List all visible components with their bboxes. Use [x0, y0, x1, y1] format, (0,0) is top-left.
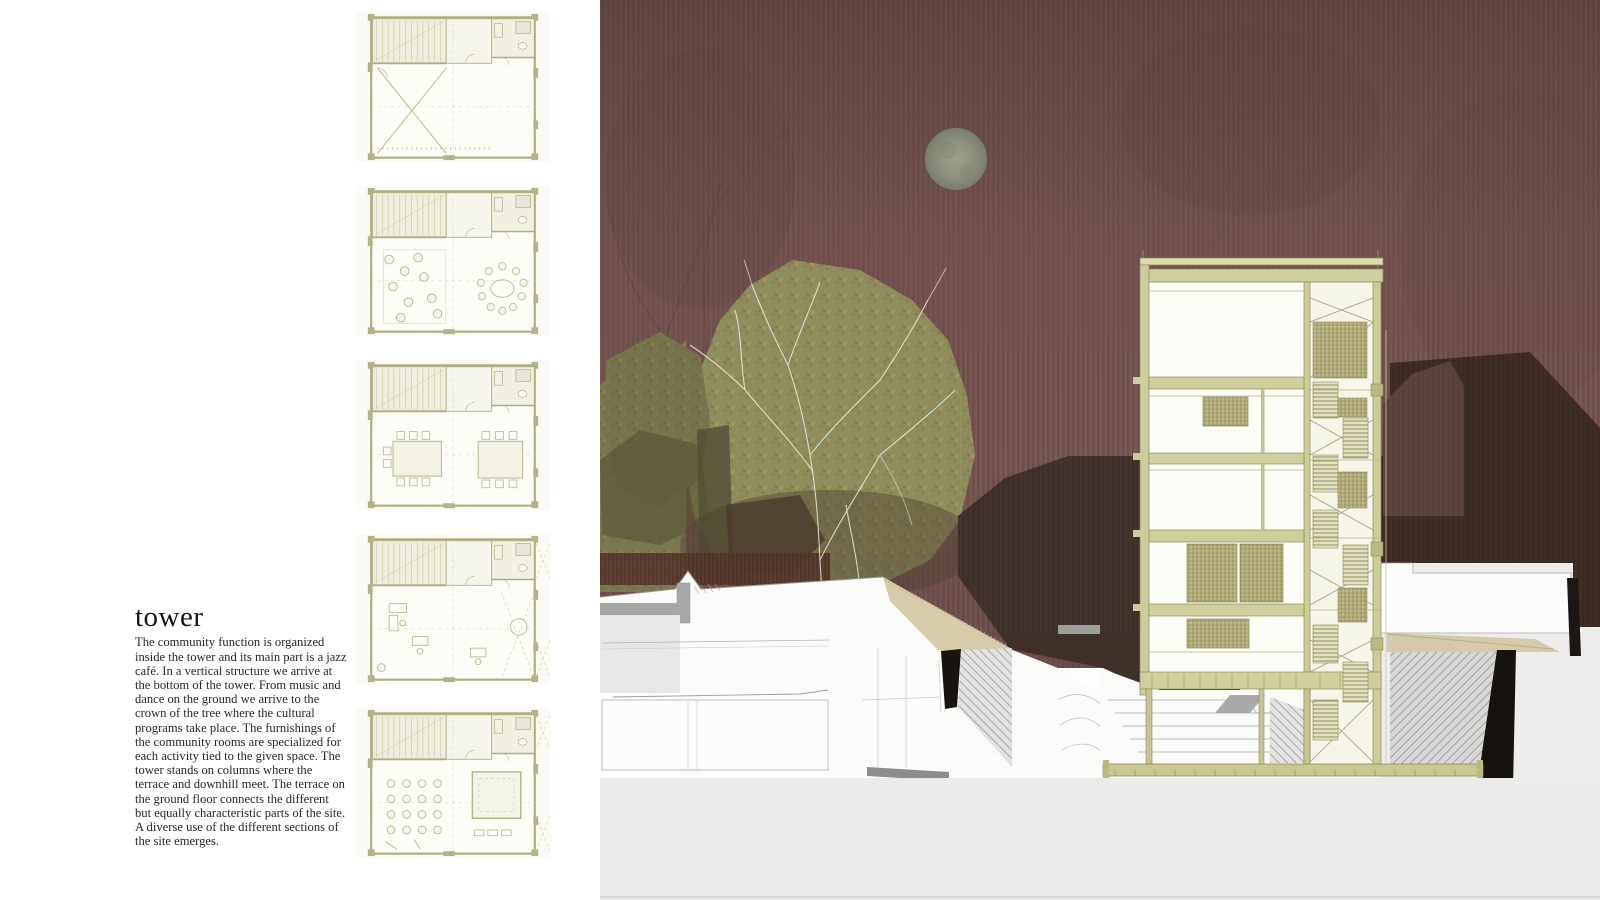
- floor-plan-top-level: [352, 12, 554, 162]
- presentation-board: tower The community function is organize…: [0, 0, 1600, 900]
- floor-plan-meeting-level: [352, 360, 554, 510]
- floor-plan-office-level: [352, 534, 554, 684]
- section-rendering: [600, 0, 1600, 900]
- floor-plan-performance-level: [352, 708, 554, 858]
- page-title: tower: [135, 602, 347, 632]
- rendering-svg: [600, 0, 1600, 900]
- floor-plans-column: [352, 0, 556, 882]
- project-description: tower The community function is organize…: [135, 602, 347, 848]
- description-paragraph: The community function is organized insi…: [135, 635, 347, 848]
- floor-plan-cafe-level: [352, 186, 554, 336]
- moon: [925, 128, 987, 190]
